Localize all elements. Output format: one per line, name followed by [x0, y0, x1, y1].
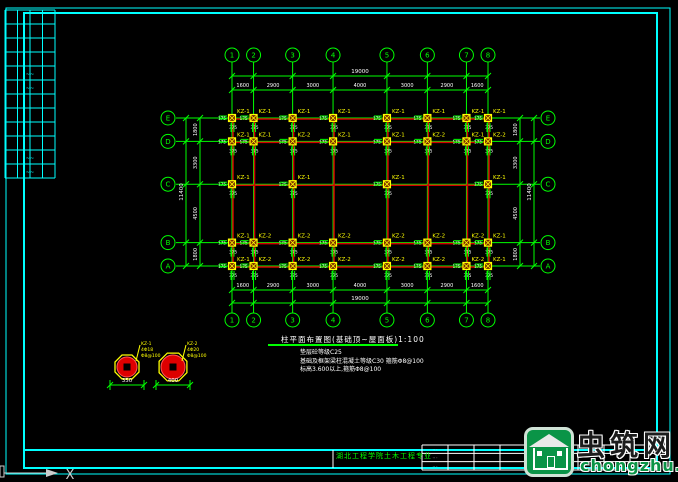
- column-kz-label: KZ-1: [298, 175, 311, 181]
- column-kz-label: KZ-2: [432, 234, 445, 240]
- column-micro-dim: 375: [384, 191, 392, 196]
- column-micro-dim: 375: [384, 250, 392, 255]
- column-micro-dim: 375: [463, 125, 471, 130]
- column-kz-label: KZ-1: [237, 234, 250, 240]
- house-window-icon: [537, 451, 542, 456]
- column-micro-dim: 375: [485, 250, 493, 255]
- detail-leader-text: KZ-2: [187, 341, 198, 347]
- dim-top-segment-label: 3000: [401, 83, 414, 89]
- dim-left-total-label: 11400: [179, 183, 185, 201]
- dim-bottom-segment-label: 3000: [306, 283, 319, 289]
- dim-bottom-segment-label: 3000: [401, 283, 414, 289]
- left-strip-mark: ~~: [26, 170, 34, 176]
- axis-number-bottom: 2: [251, 317, 255, 325]
- detail-leader-text: Φ8@100: [141, 353, 161, 359]
- column-micro-dim: 375: [424, 273, 432, 278]
- dim-right-segment-label: 1800: [513, 123, 519, 136]
- dim-top-segment-label: 2900: [441, 83, 454, 89]
- column-kz-label: KZ-2: [392, 234, 405, 240]
- column-micro-dim: 375: [330, 273, 338, 278]
- axis-number-top: 2: [251, 52, 255, 60]
- column-micro-dim: 375: [290, 273, 298, 278]
- plan-notes: 垫层砼等级C25 基础及框架梁柱混凝土等级C30 箍筋Φ8@100 标高3.60…: [300, 349, 424, 375]
- axis-number-bottom: 4: [331, 317, 336, 325]
- detail-size-label: 350: [122, 378, 133, 384]
- column-micro-dim: 375: [485, 191, 493, 196]
- axis-letter-left: D: [165, 138, 170, 146]
- dim-top-segment-label: 4000: [354, 83, 367, 89]
- column-micro-dim: 375: [330, 125, 338, 130]
- column-kz-label: KZ-1: [471, 132, 484, 138]
- column-micro-dim: 375: [290, 191, 298, 196]
- column-micro-dim: 375: [251, 250, 259, 255]
- axis-number-bottom: 5: [385, 317, 389, 325]
- column-kz-label: KZ-1: [471, 109, 484, 115]
- column-kz-label: KZ-1: [259, 109, 272, 115]
- dim-top-segment-label: 2900: [267, 83, 280, 89]
- axis-number-top: 4: [331, 52, 336, 60]
- watermark-site-url: chongzhu.cn: [580, 456, 678, 475]
- axis-letter-right: D: [545, 138, 550, 146]
- column-micro-dim: 375: [424, 148, 432, 153]
- dim-left-segment-label: 1800: [193, 123, 199, 136]
- note-line-1: 垫层砼等级C25: [300, 349, 424, 358]
- column-kz-label: KZ-1: [338, 132, 351, 138]
- column-micro-dim: 375: [463, 250, 471, 255]
- watermark-house-icon: [524, 427, 574, 477]
- ucs-origin-box: [0, 466, 4, 477]
- detail-leader-text: Φ8@100: [187, 353, 207, 359]
- column-micro-dim: 375: [463, 148, 471, 153]
- sheet-outer-border: [6, 8, 670, 474]
- detail-leader-line: [136, 345, 140, 361]
- column-kz-label: KZ-2: [471, 257, 484, 263]
- ucs-arrow-icon: [46, 469, 58, 477]
- column-micro-dim: 375: [485, 125, 493, 130]
- detail-leader-text: 4Φ18: [141, 347, 153, 353]
- column-kz-label: KZ-1: [392, 132, 405, 138]
- column-kz-label: KZ-2: [338, 257, 351, 263]
- axis-number-top: 3: [290, 52, 294, 60]
- dim-bottom-segment-label: 1600: [236, 283, 249, 289]
- dim-bottom-segment-label: 4000: [354, 283, 367, 289]
- axis-letter-right: E: [546, 115, 550, 123]
- axis-number-top: 8: [486, 52, 490, 60]
- axis-number-top: 5: [385, 52, 389, 60]
- dim-top-segment-label: 3000: [306, 83, 319, 89]
- sheet-inner-frame: [24, 13, 657, 468]
- title-underline: [268, 344, 398, 346]
- column-kz-label: KZ-2: [298, 132, 311, 138]
- column-micro-dim: 375: [229, 273, 237, 278]
- column-micro-dim: 375: [424, 125, 432, 130]
- axis-number-bottom: 1: [230, 317, 234, 325]
- axis-number-bottom: 8: [486, 317, 490, 325]
- column-micro-dim: 375: [330, 250, 338, 255]
- column-micro-dim: 375: [485, 273, 493, 278]
- axis-number-top: 7: [464, 52, 468, 60]
- column-micro-dim: 375: [290, 125, 298, 130]
- footer-department-label: 湖北工程学院土木工程专业: [336, 451, 432, 461]
- column-kz-label: KZ-1: [298, 109, 311, 115]
- axis-number-bottom: 6: [425, 317, 430, 325]
- column-micro-dim: 375: [463, 273, 471, 278]
- column-kz-label: KZ-1: [237, 257, 250, 263]
- dim-left-segment-label: 1800: [193, 248, 199, 261]
- column-kz-label: KZ-1: [237, 132, 250, 138]
- column-kz-label: KZ-1: [392, 175, 405, 181]
- column-micro-dim: 375: [384, 148, 392, 153]
- left-strip-mark: ~~: [26, 156, 34, 162]
- left-strip-mark: ~~: [26, 86, 34, 92]
- column-micro-dim: 375: [251, 273, 259, 278]
- column-micro-dim: 375: [229, 191, 237, 196]
- axis-number-bottom: 3: [290, 317, 294, 325]
- column-micro-dim: 375: [330, 148, 338, 153]
- column-kz-label: KZ-1: [338, 109, 351, 115]
- column-kz-label: KZ-1: [493, 175, 506, 181]
- dim-left-segment-label: 4500: [193, 207, 199, 220]
- column-kz-label: KZ-2: [493, 132, 506, 138]
- house-window-icon: [557, 451, 562, 456]
- column-kz-label: KZ-1: [432, 109, 445, 115]
- axis-letter-right: A: [546, 263, 551, 271]
- title-block-cell-text: ·· ·: [432, 447, 437, 452]
- column-kz-label: KZ-1: [392, 109, 405, 115]
- column-kz-label: KZ-1: [493, 109, 506, 115]
- column-kz-label: KZ-1: [237, 109, 250, 115]
- column-micro-dim: 375: [229, 250, 237, 255]
- dim-bottom-segment-label: 1600: [471, 283, 484, 289]
- left-strip-mark: ~~: [26, 72, 34, 78]
- column-kz-label: KZ-2: [298, 257, 311, 263]
- axis-letter-left: A: [166, 263, 171, 271]
- column-micro-dim: 375: [384, 125, 392, 130]
- column-kz-label: KZ-2: [432, 257, 445, 263]
- house-body-icon: [533, 448, 568, 470]
- house-door-icon: [547, 456, 555, 468]
- note-line-3: 标高3.600以上,箍筋Φ8@100: [300, 366, 424, 375]
- column-kz-label: KZ-2: [338, 234, 351, 240]
- note-line-2: 基础及框架梁柱混凝土等级C30 箍筋Φ8@100: [300, 358, 424, 367]
- detail-size-label: 400: [168, 378, 179, 384]
- detail-leader-text: KZ-1: [141, 341, 152, 347]
- axis-letter-left: B: [166, 239, 171, 247]
- axis-letter-right: B: [546, 239, 551, 247]
- axis-letter-right: C: [546, 181, 551, 189]
- dim-right-segment-label: 3300: [513, 156, 519, 169]
- cad-sheet: ~~~~~~~~X1122334455667788EEDDCCBBAA19000…: [0, 0, 678, 482]
- column-kz-label: KZ-2: [259, 234, 272, 240]
- dim-top-segment-label: 1600: [471, 83, 484, 89]
- column-kz-label: KZ-2: [259, 257, 272, 263]
- column-micro-dim: 375: [290, 148, 298, 153]
- column-micro-dim: 375: [229, 148, 237, 153]
- dim-top-segment-label: 1600: [236, 83, 249, 89]
- column-kz-label: KZ-2: [298, 234, 311, 240]
- dim-top-total-label: 19000: [351, 69, 369, 75]
- detail-core-square: [124, 364, 130, 370]
- dim-bottom-segment-label: 2900: [441, 283, 454, 289]
- dim-left-segment-label: 3300: [193, 156, 199, 169]
- dim-bottom-total-label: 19000: [351, 296, 369, 302]
- axis-letter-left: E: [166, 115, 170, 123]
- column-micro-dim: 375: [251, 148, 259, 153]
- dim-right-total-label: 11400: [527, 183, 533, 201]
- detail-core-square: [170, 364, 176, 370]
- detail-leader-text: 4Φ20: [187, 347, 199, 353]
- column-micro-dim: 375: [485, 148, 493, 153]
- dim-bottom-segment-label: 2900: [267, 283, 280, 289]
- axis-letter-left: C: [166, 181, 171, 189]
- column-kz-label: KZ-2: [392, 257, 405, 263]
- column-micro-dim: 375: [229, 125, 237, 130]
- column-micro-dim: 375: [290, 250, 298, 255]
- cad-drawing-canvas: ~~~~~~~~X1122334455667788EEDDCCBBAA19000…: [0, 0, 678, 482]
- column-kz-label: KZ-2: [471, 234, 484, 240]
- column-micro-dim: 375: [384, 273, 392, 278]
- column-micro-dim: 375: [251, 125, 259, 130]
- dim-right-segment-label: 4500: [513, 207, 519, 220]
- column-kz-label: KZ-2: [432, 132, 445, 138]
- axis-number-bottom: 7: [464, 317, 468, 325]
- title-block-cell-text: ·· ·: [432, 464, 437, 469]
- column-kz-label: KZ-1: [493, 234, 506, 240]
- column-kz-label: KZ-1: [493, 257, 506, 263]
- dim-right-segment-label: 1800: [513, 248, 519, 261]
- axis-number-top: 6: [425, 52, 430, 60]
- column-kz-label: KZ-1: [259, 132, 272, 138]
- column-kz-label: KZ-1: [237, 175, 250, 181]
- axis-number-top: 1: [230, 52, 234, 60]
- ucs-axis-label: X: [66, 468, 75, 482]
- title-block-cell-text: ·· ·: [432, 456, 437, 461]
- column-micro-dim: 375: [424, 250, 432, 255]
- house-roof-icon: [529, 434, 569, 447]
